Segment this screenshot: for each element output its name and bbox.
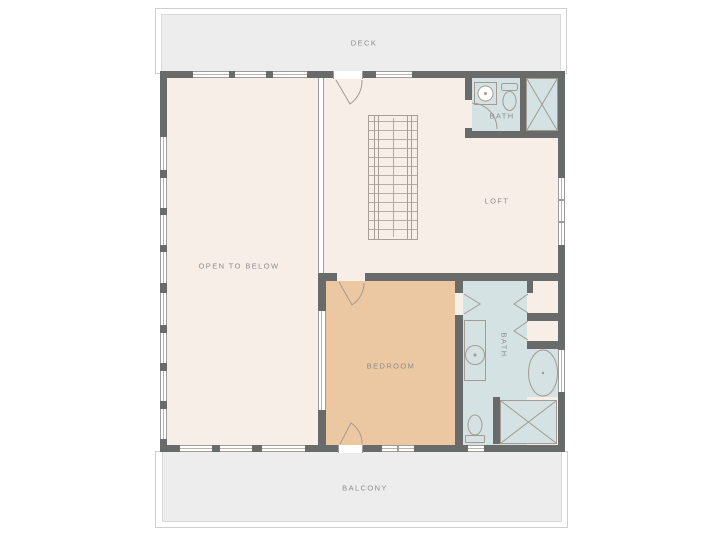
loft-label: LOFT: [485, 197, 510, 206]
door-swing-balcony: [340, 423, 362, 444]
sink-drain-upper: [484, 92, 487, 95]
bath-lower-label: BATH: [500, 332, 509, 357]
toilet-tank-upper: [502, 84, 518, 91]
toilet-bowl-lower: [468, 415, 482, 435]
toilet-tank-lower: [466, 436, 485, 443]
door-swing-bath-lower: [464, 294, 480, 314]
open-to-below-label: OPEN TO BELOW: [199, 262, 280, 271]
sink-drain-lower: [474, 354, 477, 357]
bath-upper-label: BATH: [489, 112, 514, 121]
fixture-overlay: [0, 0, 720, 541]
door-swing-closet-2: [514, 321, 528, 340]
shower-lower-x: [501, 401, 556, 443]
bedroom-label: BEDROOM: [367, 362, 416, 371]
toilet-bowl-upper: [503, 92, 516, 111]
shower-upper-x: [527, 79, 557, 130]
door-swing-hall: [336, 80, 362, 104]
door-swing-closet-1: [514, 294, 528, 313]
floor-plan-canvas: DECK BALCONY: [0, 0, 720, 541]
sink-vanity-lower: [465, 321, 486, 381]
bathtub-drain: [542, 372, 544, 374]
door-swing-bedroom-entry: [339, 282, 364, 305]
